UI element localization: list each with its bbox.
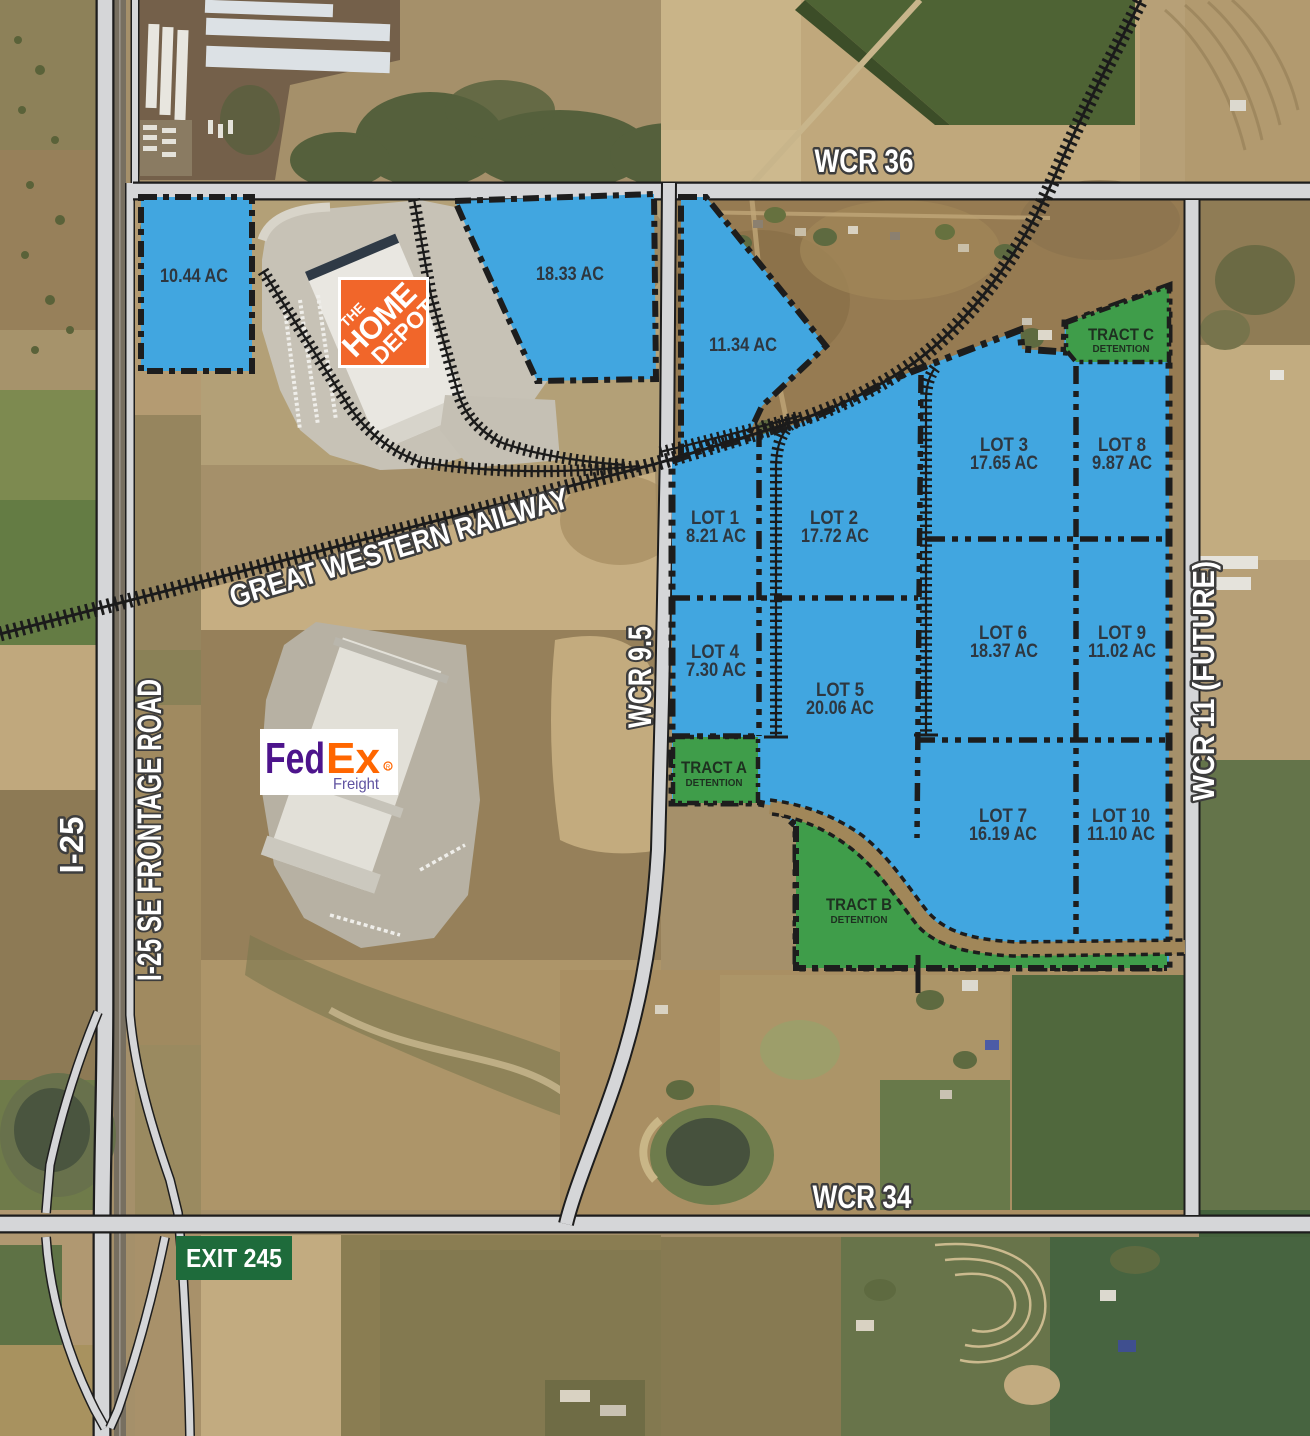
svg-text:TRACT A: TRACT A bbox=[681, 758, 747, 777]
svg-text:WCR 36: WCR 36 bbox=[815, 143, 914, 179]
svg-text:TRACT B: TRACT B bbox=[826, 895, 892, 914]
svg-text:18.37 AC: 18.37 AC bbox=[970, 641, 1038, 662]
svg-text:18.33 AC: 18.33 AC bbox=[536, 264, 604, 285]
svg-text:16.19 AC: 16.19 AC bbox=[969, 824, 1037, 845]
svg-text:I-25: I-25 bbox=[53, 817, 90, 874]
svg-text:10.44 AC: 10.44 AC bbox=[160, 266, 228, 287]
svg-text:DETENTION: DETENTION bbox=[1093, 343, 1150, 355]
svg-text:11.10 AC: 11.10 AC bbox=[1087, 824, 1155, 845]
svg-text:DETENTION: DETENTION bbox=[831, 914, 888, 926]
svg-text:7.30 AC: 7.30 AC bbox=[686, 660, 746, 681]
svg-text:DETENTION: DETENTION bbox=[686, 777, 743, 789]
svg-text:WCR 11 (FUTURE): WCR 11 (FUTURE) bbox=[1186, 561, 1221, 801]
svg-text:R: R bbox=[386, 765, 391, 771]
svg-text:I-25 SE FRONTAGE ROAD: I-25 SE FRONTAGE ROAD bbox=[131, 679, 169, 981]
svg-text:TRACT C: TRACT C bbox=[1088, 325, 1154, 344]
svg-text:Freight: Freight bbox=[333, 776, 380, 793]
svg-text:17.65 AC: 17.65 AC bbox=[970, 453, 1038, 474]
svg-text:8.21 AC: 8.21 AC bbox=[686, 526, 746, 547]
svg-text:Fed: Fed bbox=[265, 734, 325, 783]
svg-text:20.06 AC: 20.06 AC bbox=[806, 698, 874, 719]
svg-text:17.72 AC: 17.72 AC bbox=[801, 526, 869, 547]
svg-text:9.87 AC: 9.87 AC bbox=[1092, 453, 1152, 474]
svg-text:EXIT 245: EXIT 245 bbox=[186, 1243, 282, 1273]
svg-text:11.34 AC: 11.34 AC bbox=[709, 335, 777, 356]
svg-text:WCR 9.5: WCR 9.5 bbox=[622, 626, 658, 728]
svg-text:11.02 AC: 11.02 AC bbox=[1088, 641, 1156, 662]
svg-text:WCR 34: WCR 34 bbox=[813, 1179, 912, 1215]
